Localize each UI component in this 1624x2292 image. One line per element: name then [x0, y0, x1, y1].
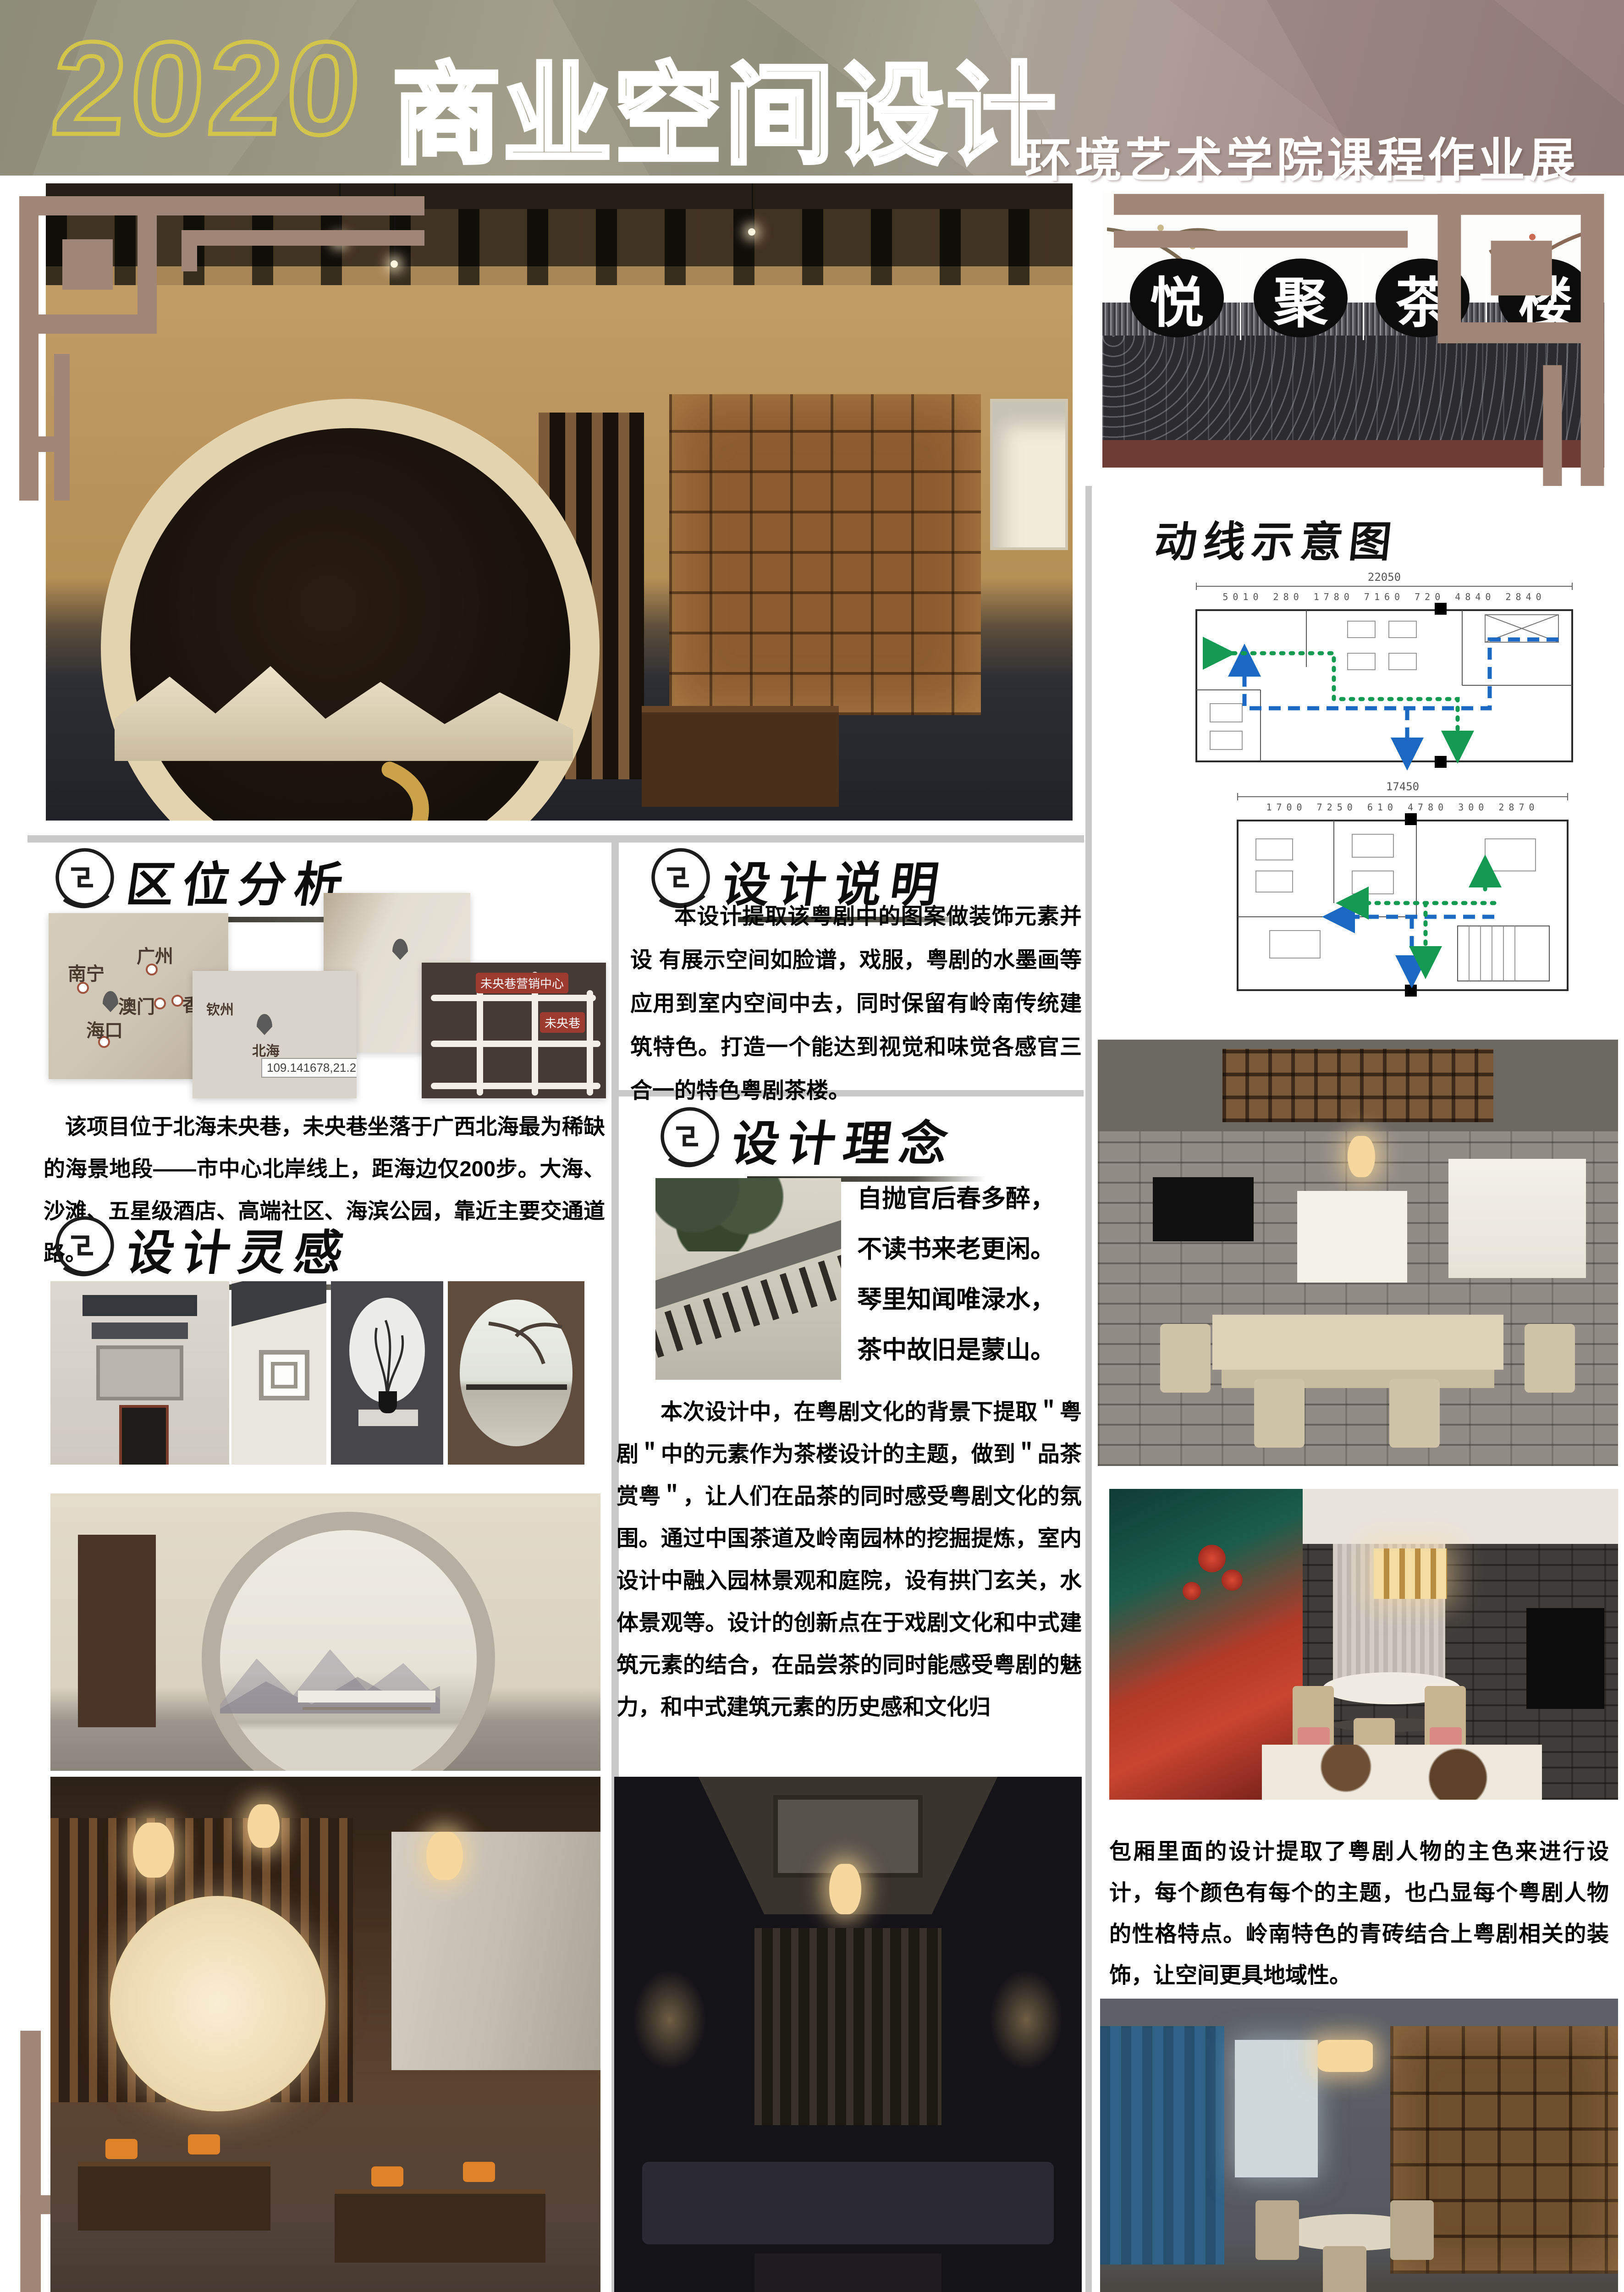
gate-door [119, 1405, 169, 1465]
chair [1160, 1324, 1211, 1393]
window [1235, 2040, 1318, 2177]
section-inspiration: 设计灵感 [50, 1214, 351, 1283]
map-label-pill: 未央巷营销中心 [476, 973, 568, 993]
console-table [298, 1691, 435, 1702]
pink-cushion [1298, 1727, 1330, 1746]
chair [1254, 1379, 1305, 1448]
inspiration-vase-image [331, 1281, 443, 1465]
map-pin [103, 991, 118, 1012]
plan2-dims: 1700 7250 610 4780 300 2870 [1266, 802, 1539, 813]
orange-cushion [188, 2134, 220, 2154]
plan2-total-dim: 17450 [1386, 780, 1419, 793]
street-map-image: 未央巷营销中心 未央巷 [422, 963, 606, 1098]
poem-line: 琴里知闻唯渌水， [857, 1279, 1055, 1315]
concept-stairs-image [655, 1178, 841, 1380]
map-label: 南宁 [68, 959, 105, 986]
map-label-pill: 未央巷 [540, 1012, 585, 1033]
blue-curtains [1100, 2026, 1224, 2264]
map-marker [154, 997, 166, 1009]
render-tearoom-image [50, 1777, 600, 2292]
inspiration-eave-image [231, 1281, 326, 1465]
map-label: 海口 [86, 1016, 123, 1042]
orange-cushion [105, 2139, 138, 2159]
section-concept: 设计理念 [655, 1105, 956, 1174]
main-paragraph: 本次设计中，在粤剧文化的背景下提取＂粤剧＂中的元素作为茶楼设计的主题，做到＂品茶… [617, 1391, 1082, 1729]
render-moon-room-image [50, 1493, 600, 1771]
coordinates-box: 109.141678,21.214861 [261, 1058, 357, 1078]
description-paragraph: 本设计提取该粤剧中的图案做装饰元素并设 有展示空间如脸谱，戏服，粤剧的水墨画等应… [630, 895, 1082, 1113]
pompom [1198, 1545, 1226, 1572]
map-road [431, 1083, 600, 1089]
lantern [133, 1823, 174, 1878]
poem-line: 自抛官后春多醉， [857, 1178, 1055, 1214]
railing [466, 1384, 567, 1390]
wall-art [990, 399, 1068, 550]
chair [1390, 2200, 1434, 2260]
title-year: 2020 [47, 13, 370, 165]
lattice-circle-icon [50, 1214, 119, 1283]
foliage [655, 1178, 784, 1251]
vase [379, 1391, 397, 1413]
map-label: 北海 [252, 1040, 280, 1060]
section-location: 区位分析 [50, 846, 351, 915]
circulation-title: 动线示意图 [1152, 508, 1401, 569]
pompom [1183, 1582, 1201, 1600]
map-pin [257, 1014, 272, 1035]
plan1-total-dim: 22050 [1368, 571, 1401, 584]
wall-scroll-paintings [1448, 1159, 1586, 1278]
plant-silhouette [349, 1298, 425, 1403]
map-pin [392, 939, 408, 960]
section-title: 设计灵感 [122, 1214, 356, 1283]
section-title: 设计理念 [727, 1105, 961, 1174]
ceiling-lattice [1222, 1049, 1493, 1122]
pendant-light [752, 183, 753, 229]
slat-wall [754, 1928, 941, 2125]
chandelier [1374, 1548, 1447, 1599]
poster-page: 2020 商业空间设计 环境艺术学院课程作业展示 [0, 0, 1624, 2292]
chair [1255, 2200, 1299, 2260]
reception-desk [642, 706, 839, 807]
dining-table [335, 2189, 545, 2263]
render-blue-room-image [1100, 1999, 1618, 2292]
title-main: 商业空间设计 [392, 27, 1057, 185]
lattice-corner-top-left [3, 180, 424, 501]
wall-tv [1153, 1177, 1254, 1241]
sofa [642, 2162, 1054, 2244]
pink-cushion [1430, 1727, 1462, 1746]
chandelier [1318, 2040, 1373, 2072]
coordinates-text: 109.141678,21.214861 [267, 1061, 357, 1074]
wall-glow [633, 1969, 706, 2070]
lattice-window [259, 1350, 309, 1400]
ink-mural-wall [391, 1832, 600, 2070]
inspiration-gate-image [50, 1281, 229, 1465]
plan1-dims: 5010 280 1780 7160 720 4840 2840 [1222, 591, 1546, 602]
divider-vertical [1085, 486, 1092, 2292]
beihai-map-image: 钦州 北海 109.141678,21.214861 [193, 971, 357, 1098]
inspiration-moongate-image [448, 1281, 584, 1465]
cowhide-rug [1262, 1745, 1542, 1800]
map-road [431, 1041, 600, 1047]
floor-plan-1: 22050 5010 280 1780 7160 720 4840 2840 [1164, 571, 1604, 772]
dining-table [78, 2162, 270, 2231]
lantern [248, 1804, 280, 1848]
tree-branch [460, 1300, 573, 1373]
wood-door [78, 1535, 156, 1727]
render-grey-tearoom-image [1098, 1040, 1618, 1466]
map-label: 钦州 [206, 998, 234, 1019]
render-darkroom-image [614, 1777, 1082, 2292]
wall-tv [1526, 1608, 1604, 1709]
lantern [829, 1864, 861, 1914]
lantern [426, 1832, 463, 1880]
tea-shelf-wall [669, 394, 981, 715]
render-opera-room-image [1109, 1489, 1618, 1800]
moon-gate-ring [202, 1512, 495, 1771]
section-title: 区位分析 [122, 846, 356, 915]
orange-cushion [371, 2166, 403, 2187]
orange-cushion [463, 2162, 495, 2182]
map-marker [171, 995, 183, 1007]
poem-line: 茶中故旧是蒙山。 [857, 1329, 1055, 1366]
map-label: 广州 [137, 942, 173, 968]
floor-plan-2: 17450 1700 7250 610 4780 300 2870 [1201, 779, 1604, 1008]
lattice-circle-icon [50, 846, 119, 915]
lantern [1348, 1136, 1375, 1177]
chair [1389, 1379, 1440, 1448]
tea-table [754, 2253, 941, 2292]
pompom [1222, 1570, 1243, 1591]
divider-horizontal [28, 835, 1084, 843]
gate-panel [96, 1345, 183, 1400]
gate-eave [92, 1322, 188, 1339]
lattice-circle-icon [655, 1105, 724, 1174]
chair [1525, 1324, 1575, 1393]
gate-eave [83, 1295, 197, 1316]
private-room-paragraph: 包厢里面的设计提取了粤剧人物的主色来进行设计，每个颜色有每个的主题，也凸显每个粤… [1109, 1831, 1609, 1996]
map-road [431, 995, 596, 1001]
chair [1323, 2246, 1366, 2292]
map-road [587, 990, 593, 1096]
light-bulb [748, 228, 755, 236]
roof-eave [231, 1281, 326, 1328]
lattice-corner-top-right [1114, 176, 1624, 524]
map-road [477, 981, 483, 1096]
moon-opening [110, 1896, 325, 2111]
map-label: 澳门 [118, 992, 155, 1019]
wall-glow [990, 1969, 1063, 2070]
poem-line: 不读书来老更闲。 [857, 1229, 1055, 1265]
long-tea-table [1212, 1315, 1504, 1370]
